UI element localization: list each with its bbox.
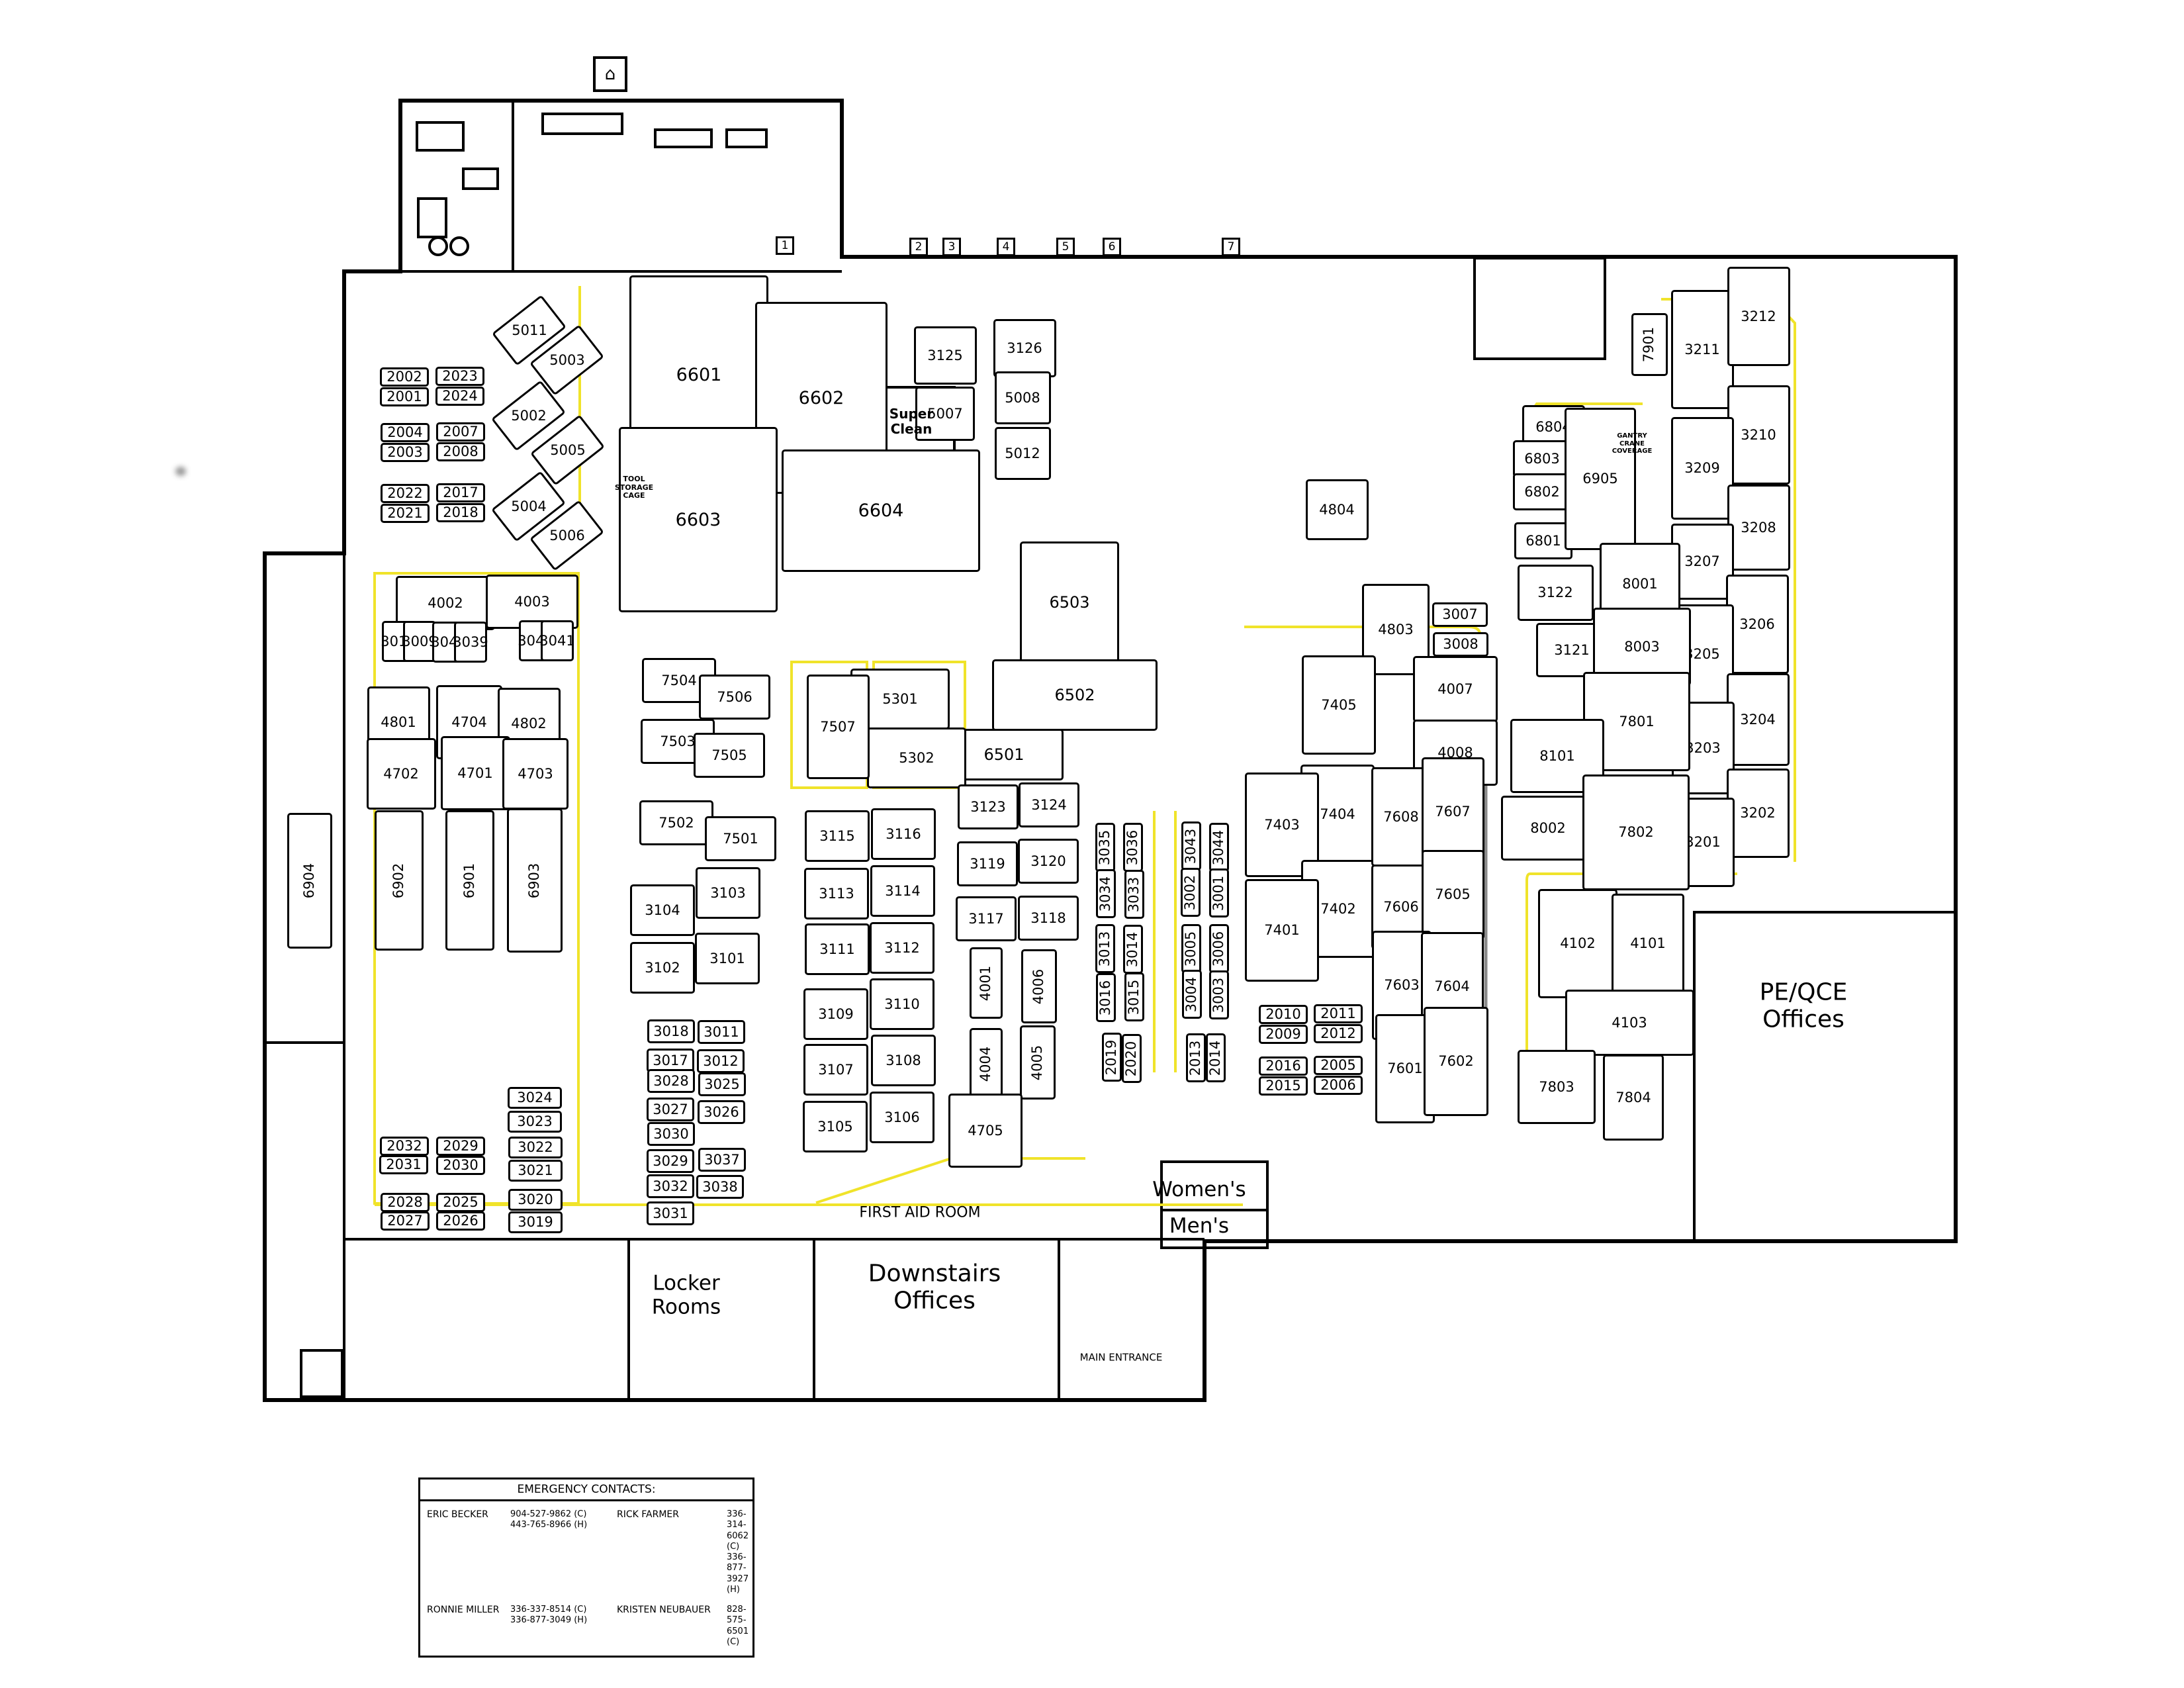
- machine-3014: 3014: [1123, 925, 1143, 974]
- machine-3126: 3126: [993, 319, 1056, 377]
- machine-label: 7506: [717, 690, 752, 704]
- machine-2012: 2012: [1314, 1024, 1363, 1043]
- machine-label: 4004: [979, 1046, 993, 1081]
- machine-label: 3121: [1554, 643, 1589, 657]
- machine-label: 7505: [711, 749, 747, 763]
- machine-7901: 7901: [1631, 313, 1668, 376]
- machine-label: 2003: [387, 445, 422, 459]
- machine-label: 6501: [983, 747, 1024, 763]
- machine-3021: 3021: [508, 1160, 563, 1182]
- area-label-super-clean: Super Clean: [889, 406, 933, 437]
- machine-2023: 2023: [435, 367, 484, 386]
- machine-3019: 3019: [508, 1211, 563, 1233]
- machine-3120: 3120: [1018, 839, 1079, 884]
- machine-3026: 3026: [698, 1100, 745, 1124]
- machine-label: 7507: [820, 720, 855, 734]
- machine-label: 7504: [661, 674, 696, 688]
- machine-3004: 3004: [1182, 970, 1202, 1019]
- machine-label: 3032: [653, 1180, 688, 1194]
- area-label-womens: Women's: [1152, 1178, 1246, 1202]
- machine-label: 3112: [884, 941, 919, 955]
- emergency-contacts-grid: ERIC BECKER904-527-9862 (C) 443-765-8966…: [420, 1501, 752, 1656]
- machine-label: 6503: [1049, 594, 1089, 610]
- smudge-mark: [175, 467, 186, 476]
- machine-label: 3017: [653, 1054, 688, 1068]
- machine-label: 2025: [443, 1196, 478, 1209]
- machine-2006: 2006: [1314, 1076, 1363, 1095]
- machine-3204: 3204: [1727, 673, 1790, 766]
- machine-5008: 5008: [995, 371, 1051, 424]
- machine-6603: 6603: [619, 427, 778, 612]
- machine-label: 7608: [1383, 810, 1418, 824]
- machine-label: 6905: [1582, 472, 1617, 486]
- machine-2015: 2015: [1259, 1076, 1308, 1096]
- machine-label: 3004: [1185, 976, 1199, 1011]
- machine-label: 3035: [1099, 829, 1113, 865]
- machine-3033: 3033: [1124, 870, 1144, 919]
- machine-7401: 7401: [1245, 879, 1319, 982]
- machine-label: 3116: [886, 827, 921, 841]
- machine-4804: 4804: [1306, 479, 1369, 540]
- machine-label: 7405: [1321, 698, 1356, 712]
- machine-label: 3003: [1212, 977, 1226, 1012]
- machine-3116: 3116: [871, 808, 936, 860]
- machine-label: 3033: [1128, 876, 1142, 912]
- machine-label: 6902: [392, 863, 406, 898]
- machine-label: 7502: [659, 816, 694, 830]
- machine-label: 3115: [819, 829, 854, 843]
- machine-2007: 2007: [436, 422, 485, 442]
- machine-label: 2023: [442, 369, 477, 383]
- machine-label: 3037: [704, 1153, 739, 1167]
- machine-label: 7501: [723, 832, 758, 846]
- contact-name: RONNIE MILLER: [427, 1605, 506, 1648]
- area-label-main-entrance: MAIN ENTRANCE: [1080, 1352, 1163, 1363]
- machine-label: 7604: [1434, 980, 1469, 994]
- machine-label: 2016: [1265, 1059, 1300, 1073]
- machine-label: 3041: [539, 634, 574, 648]
- machine-label: 2024: [442, 389, 477, 403]
- machine-4004: 4004: [970, 1028, 1003, 1100]
- machine-label: 3029: [653, 1154, 688, 1168]
- machine-label: 3102: [645, 961, 680, 975]
- machine-4705: 4705: [948, 1094, 1023, 1168]
- machine-label: 4705: [968, 1124, 1003, 1138]
- machine-3111: 3111: [805, 923, 870, 975]
- machine-label: 2017: [443, 486, 478, 500]
- machine-2016: 2016: [1259, 1056, 1308, 1076]
- machine-3113: 3113: [804, 868, 869, 919]
- machine-3107: 3107: [803, 1044, 868, 1096]
- machine-label: 7607: [1435, 805, 1470, 819]
- area-label-pe-qce-offices: PE/QCE Offices: [1760, 979, 1848, 1034]
- contact-phones: 904-527-9862 (C) 443-765-8966 (H): [510, 1509, 613, 1595]
- machine-3110: 3110: [870, 978, 934, 1030]
- machine-2026: 2026: [436, 1211, 485, 1231]
- machine-4701: 4701: [441, 736, 510, 810]
- machine-label: 2007: [443, 425, 478, 439]
- machine-label: 3207: [1684, 555, 1719, 569]
- machine-2020: 2020: [1122, 1034, 1142, 1083]
- machine-2002: 2002: [380, 367, 429, 387]
- machine-3202: 3202: [1727, 769, 1790, 858]
- machine-label: 3103: [710, 886, 745, 900]
- machine-label: 3011: [704, 1025, 739, 1039]
- contact-name: RICK FARMER: [617, 1509, 723, 1595]
- machine-2027: 2027: [381, 1211, 430, 1231]
- machine-label: 4703: [518, 767, 553, 781]
- machine-label: 4005: [1031, 1045, 1045, 1080]
- machine-label: 3016: [1099, 980, 1113, 1015]
- machine-label: 5302: [899, 751, 934, 765]
- machine-label: 5006: [549, 529, 584, 543]
- machine-label: 6502: [1054, 687, 1095, 703]
- machine-3210: 3210: [1727, 385, 1790, 485]
- machine-3101: 3101: [695, 933, 760, 984]
- machine-label: 6602: [799, 389, 844, 407]
- machine-label: 8003: [1624, 640, 1659, 654]
- machine-label: 2014: [1209, 1040, 1223, 1075]
- machine-label: 3210: [1741, 428, 1776, 442]
- machine-3041: 3041: [541, 620, 574, 661]
- machine-label: 3031: [653, 1207, 688, 1221]
- machine-4001: 4001: [970, 947, 1003, 1019]
- machine-label: 3119: [970, 857, 1005, 871]
- machine-label: 3105: [817, 1120, 852, 1134]
- machine-7506: 7506: [699, 675, 770, 720]
- machine-label: 7603: [1384, 978, 1419, 992]
- machine-3036: 3036: [1123, 823, 1143, 872]
- machine-3002: 3002: [1181, 868, 1201, 917]
- machine-2013: 2013: [1186, 1033, 1206, 1082]
- machine-label: 3001: [1212, 875, 1226, 910]
- machine-label: 7801: [1619, 715, 1654, 729]
- machine-5012: 5012: [995, 427, 1051, 480]
- grid-marker-2: 2: [909, 238, 928, 256]
- machine-3030: 3030: [647, 1122, 695, 1146]
- machine-3027: 3027: [647, 1098, 694, 1121]
- machine-label: 3024: [517, 1091, 552, 1105]
- emergency-contacts-title: EMERGENCY CONTACTS:: [420, 1479, 752, 1501]
- machine-label: 3118: [1030, 912, 1066, 925]
- machine-2010: 2010: [1259, 1005, 1308, 1024]
- machine-label: 3117: [968, 912, 1003, 926]
- machine-label: 7602: [1438, 1055, 1473, 1068]
- machine-label: 3126: [1007, 342, 1042, 355]
- machine-label: 3110: [884, 998, 919, 1011]
- machine-label: 6803: [1524, 452, 1559, 466]
- machine-2029: 2029: [436, 1137, 485, 1156]
- machine-3112: 3112: [870, 922, 934, 974]
- machine-label: 8101: [1539, 749, 1574, 763]
- machine-4007: 4007: [1413, 656, 1498, 722]
- machine-label: 3109: [818, 1008, 853, 1021]
- machine-label: 3020: [518, 1193, 553, 1207]
- machine-label: 7403: [1264, 818, 1299, 832]
- machine-label: 2030: [443, 1158, 478, 1172]
- machine-label: 4101: [1630, 937, 1665, 951]
- machine-2014: 2014: [1206, 1033, 1226, 1082]
- machine-2028: 2028: [381, 1193, 430, 1212]
- machine-3008: 3008: [1433, 632, 1488, 657]
- machine-label: 2004: [387, 426, 422, 440]
- machine-6803: 6803: [1513, 440, 1571, 477]
- machine-label: 2029: [443, 1139, 478, 1153]
- machine-label: 3104: [645, 904, 680, 917]
- machine-label: 3106: [884, 1111, 919, 1125]
- machine-2001: 2001: [380, 387, 429, 406]
- machine-3039: 3039: [454, 622, 487, 663]
- machine-3209: 3209: [1671, 417, 1734, 520]
- machine-label: 3122: [1537, 586, 1572, 600]
- machine-label: 3044: [1212, 829, 1226, 865]
- machine-label: 3038: [702, 1180, 737, 1194]
- machine-label: 4103: [1612, 1016, 1647, 1030]
- machine-3016: 3016: [1096, 973, 1116, 1022]
- machine-6604: 6604: [782, 449, 980, 572]
- machine-label: 3019: [518, 1215, 553, 1229]
- machine-3102: 3102: [630, 942, 695, 994]
- machine-label: 7606: [1383, 900, 1418, 914]
- machine-label: 3114: [885, 884, 920, 898]
- contact-phones: 336-314-6062 (C) 336-877-3927 (H): [727, 1509, 749, 1595]
- machine-4005: 4005: [1020, 1025, 1056, 1100]
- machine-label: 3007: [1442, 608, 1477, 622]
- machine-label: 2015: [1265, 1079, 1300, 1093]
- machine-label: 2028: [387, 1196, 422, 1209]
- machine-label: 6601: [676, 366, 722, 384]
- machine-label: 3209: [1684, 461, 1719, 475]
- machine-label: 6604: [858, 502, 904, 520]
- machine-label: 3113: [819, 887, 854, 901]
- machine-label: 3043: [1185, 828, 1199, 863]
- machine-label: 2006: [1320, 1078, 1355, 1092]
- machine-2005: 2005: [1314, 1056, 1363, 1075]
- machine-label: 3027: [653, 1103, 688, 1117]
- machine-label: 3123: [970, 800, 1005, 814]
- machine-3034: 3034: [1096, 869, 1116, 918]
- machine-label: 3018: [653, 1025, 688, 1039]
- machine-3103: 3103: [696, 867, 760, 919]
- machine-label: 3021: [518, 1164, 553, 1178]
- machine-2030: 2030: [436, 1156, 485, 1175]
- machine-label: 5002: [510, 409, 545, 423]
- machine-label: 2026: [443, 1214, 478, 1228]
- machine-2022: 2022: [381, 484, 430, 503]
- machine-label: 5003: [549, 353, 584, 367]
- floor-plan: 2002200120232024200420032007200820222021…: [0, 0, 2184, 1688]
- machine-label: 3125: [927, 349, 962, 363]
- machine-2024: 2024: [435, 387, 484, 406]
- machine-3043: 3043: [1181, 821, 1201, 870]
- machine-3015: 3015: [1124, 972, 1144, 1021]
- machine-label: 6603: [676, 511, 721, 529]
- machine-label: 3028: [653, 1074, 688, 1088]
- machine-2032: 2032: [380, 1137, 429, 1156]
- machine-label: 3124: [1031, 798, 1066, 812]
- machine-3212: 3212: [1727, 267, 1790, 366]
- machine-2008: 2008: [436, 442, 485, 461]
- machine-2004: 2004: [381, 423, 430, 442]
- machine-label: 3039: [453, 635, 488, 649]
- grid-marker-4: 4: [997, 238, 1015, 256]
- machine-3104: 3104: [630, 884, 695, 936]
- machine-label: 5011: [511, 324, 546, 338]
- machine-3123: 3123: [958, 784, 1019, 829]
- machine-label: 7404: [1320, 808, 1355, 821]
- machine-3025: 3025: [698, 1072, 746, 1096]
- machine-3006: 3006: [1209, 924, 1229, 973]
- machine-4101: 4101: [1612, 894, 1684, 993]
- emergency-contacts-table: EMERGENCY CONTACTS: ERIC BECKER904-527-9…: [418, 1477, 754, 1658]
- contact-phones: 828-575-6501 (C): [727, 1605, 749, 1648]
- machine-label: 3008: [1443, 637, 1478, 651]
- machine-label: 2020: [1125, 1041, 1139, 1076]
- machine-label: 3206: [1739, 618, 1774, 632]
- machine-label: 4001: [979, 965, 993, 1000]
- machine-3114: 3114: [870, 865, 935, 917]
- machine-7803: 7803: [1518, 1050, 1596, 1124]
- machine-6904: 6904: [287, 813, 332, 949]
- machine-label: 3025: [704, 1078, 739, 1092]
- machine-7605: 7605: [1422, 850, 1484, 939]
- machine-label: 5301: [882, 692, 917, 706]
- contact-phones: 336-337-8514 (C) 336-877-3049 (H): [510, 1605, 613, 1648]
- machine-3206: 3206: [1726, 575, 1789, 674]
- machine-label: 2012: [1320, 1027, 1355, 1041]
- machine-label: 3211: [1684, 343, 1719, 357]
- machine-8002: 8002: [1501, 796, 1595, 861]
- machine-label: 3111: [819, 943, 854, 957]
- machine-2017: 2017: [436, 483, 485, 502]
- machine-3007: 3007: [1432, 602, 1488, 627]
- machine-3122: 3122: [1518, 565, 1594, 621]
- machine-3106: 3106: [870, 1092, 934, 1143]
- machine-label: 7802: [1618, 825, 1653, 839]
- machine-label: 4702: [383, 767, 418, 781]
- machine-label: 2011: [1320, 1007, 1355, 1021]
- roof-vent-icon: ⌂: [593, 56, 627, 92]
- machine-3023: 3023: [508, 1111, 562, 1133]
- machine-6903: 6903: [507, 808, 563, 953]
- machine-label: 6904: [302, 863, 316, 898]
- machine-3208: 3208: [1727, 485, 1790, 571]
- machine-3037: 3037: [698, 1148, 746, 1172]
- contact-name: KRISTEN NEUBAUER: [617, 1605, 723, 1648]
- machine-label: 3012: [703, 1055, 738, 1068]
- grid-marker-3: 3: [942, 238, 961, 256]
- area-label-gantry-crane-coverage: GANTRY CRANE COVERAGE: [1612, 432, 1653, 455]
- machine-label: 7401: [1264, 923, 1299, 937]
- machine-label: 2031: [386, 1158, 421, 1172]
- machine-label: 3005: [1185, 931, 1199, 966]
- machine-label: 8001: [1622, 577, 1657, 591]
- machine-label: 6901: [463, 863, 477, 898]
- machine-4703: 4703: [502, 738, 569, 810]
- machine-label: 2005: [1320, 1058, 1355, 1072]
- machine-3109: 3109: [803, 988, 868, 1040]
- machine-3011: 3011: [698, 1020, 745, 1044]
- machine-label: 3015: [1128, 979, 1142, 1014]
- machine-label: 7803: [1539, 1080, 1574, 1094]
- machine-label: 7605: [1435, 888, 1470, 902]
- machine-3108: 3108: [871, 1035, 936, 1086]
- grid-marker-6: 6: [1103, 238, 1121, 256]
- machine-3005: 3005: [1181, 924, 1201, 973]
- machine-3124: 3124: [1019, 782, 1079, 827]
- machine-label: 4003: [514, 595, 549, 609]
- machine-label: 8002: [1530, 821, 1565, 835]
- machine-label: 2002: [387, 370, 422, 384]
- machine-label: 4803: [1378, 623, 1413, 637]
- machine-label: 2021: [387, 506, 422, 520]
- machine-label: 4704: [451, 716, 486, 729]
- machine-label: 3101: [709, 952, 745, 966]
- machine-4702: 4702: [367, 738, 436, 810]
- machine-7502: 7502: [639, 800, 713, 845]
- machine-7804: 7804: [1603, 1055, 1664, 1141]
- machine-label: 4804: [1319, 503, 1354, 517]
- machine-label: 6802: [1524, 485, 1559, 499]
- machine-5302: 5302: [867, 727, 966, 788]
- machine-3024: 3024: [508, 1087, 562, 1109]
- machine-6802: 6802: [1513, 473, 1571, 510]
- machine-3013: 3013: [1095, 924, 1115, 973]
- machine-label: 2032: [387, 1139, 422, 1153]
- machine-label: 4006: [1032, 968, 1046, 1004]
- machine-3115: 3115: [805, 810, 870, 862]
- machine-3003: 3003: [1209, 970, 1229, 1019]
- machine-label: 4102: [1560, 937, 1595, 951]
- machine-label: 3208: [1741, 521, 1776, 535]
- machine-3211: 3211: [1671, 290, 1734, 409]
- machine-label: 2010: [1265, 1008, 1300, 1021]
- machine-2009: 2009: [1259, 1025, 1308, 1044]
- machine-4006: 4006: [1021, 949, 1057, 1023]
- machine-3035: 3035: [1095, 823, 1115, 872]
- machine-2031: 2031: [379, 1155, 428, 1174]
- machine-label: 3120: [1030, 855, 1066, 868]
- machine-3119: 3119: [957, 841, 1018, 886]
- machine-label: 6903: [527, 863, 541, 898]
- machine-label: 3023: [517, 1115, 552, 1129]
- machine-2019: 2019: [1102, 1033, 1122, 1082]
- machine-label: 2019: [1105, 1039, 1119, 1074]
- machine-label: 5008: [1005, 391, 1040, 405]
- machine-6901: 6901: [445, 810, 494, 951]
- machine-2018: 2018: [436, 503, 485, 522]
- machine-label: 2009: [1265, 1027, 1300, 1041]
- machine-2003: 2003: [381, 443, 430, 462]
- machine-label: 6801: [1525, 534, 1561, 548]
- machine-label: 5005: [549, 444, 584, 457]
- machine-label: 5012: [1005, 447, 1040, 461]
- machine-label: 3204: [1740, 713, 1775, 727]
- area-label-tool-storage-cage: TOOL STORAGE CAGE: [615, 475, 653, 500]
- machine-label: 3036: [1126, 829, 1140, 865]
- contact-name: ERIC BECKER: [427, 1509, 506, 1595]
- machine-2011: 2011: [1314, 1004, 1363, 1023]
- machine-label: 4007: [1437, 682, 1473, 696]
- machine-label: 4002: [428, 596, 463, 610]
- machine-3018: 3018: [647, 1019, 695, 1043]
- machine-6503: 6503: [1020, 541, 1119, 664]
- area-label-mens: Men's: [1169, 1215, 1229, 1239]
- machine-3117: 3117: [956, 896, 1017, 941]
- machine-label: 3203: [1685, 741, 1720, 755]
- machine-label: 7901: [1643, 326, 1657, 361]
- machine-label: 2022: [387, 487, 422, 500]
